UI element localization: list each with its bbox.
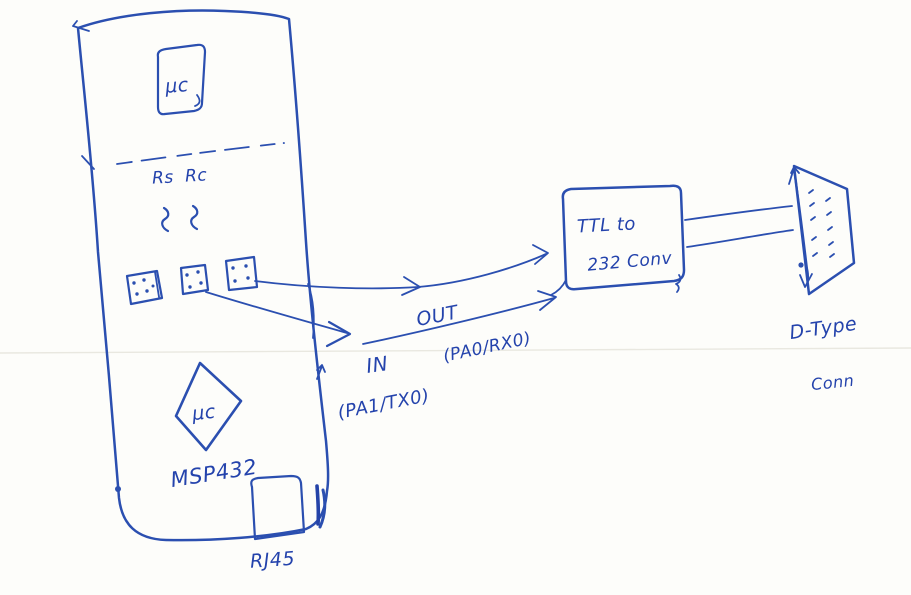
pin-dot <box>828 227 832 230</box>
chip-corner-hook <box>195 95 200 106</box>
pin-dot <box>813 253 817 256</box>
board-section-divider-dashed <box>117 143 284 164</box>
corner-ink-mark <box>320 490 325 527</box>
top-mcu-chip-label: μc <box>163 74 189 98</box>
launchpad-board: μc Rs Rc <box>73 11 328 573</box>
pad-pin-dot <box>233 279 236 282</box>
pin-dot <box>829 242 833 245</box>
box-corner-tail <box>551 280 566 295</box>
resistor-symbol-1 <box>162 208 168 231</box>
pin-dot <box>811 217 815 220</box>
corner-ink-blob <box>115 486 121 492</box>
rj45-jack <box>251 476 304 539</box>
board-name-label: MSP432 <box>169 455 259 492</box>
resistor-label-rc: Rc <box>185 165 208 186</box>
pad-pin-dot <box>152 285 155 288</box>
box-corner-squiggle <box>676 275 680 292</box>
resistor-label-rs: Rs <box>152 168 175 189</box>
pad-pin-dot <box>196 270 199 273</box>
ttl-label-line2: 232 Conv <box>587 248 674 275</box>
pin-dot <box>812 237 816 240</box>
pad-pin-dot <box>135 292 138 295</box>
header-pad-right <box>226 257 257 290</box>
pad-pin-dot <box>188 285 191 288</box>
pad-pin-dot <box>145 289 148 292</box>
dtype-pins <box>809 190 834 257</box>
in-arrowhead-icon <box>327 322 350 346</box>
header-pad-left <box>127 271 162 304</box>
dtype-label: D-Type <box>788 313 858 344</box>
pad-pin-dot <box>142 278 145 281</box>
board-edge-tick <box>82 156 94 169</box>
pin-dot <box>826 198 830 201</box>
pin-dot <box>830 254 834 257</box>
pad-pin-dot <box>246 276 249 279</box>
signal-line-in <box>206 292 347 333</box>
serial-line-lower <box>687 230 793 247</box>
arrowhead-mid-icon <box>402 277 420 295</box>
pad-outline <box>181 265 208 294</box>
hand-drawn-schematic: μc Rs Rc <box>0 0 911 595</box>
signal-arrows: OUT (PA0/RX0) IN (PA1/TX0) <box>206 245 556 424</box>
pad-outline <box>226 257 257 290</box>
pad-pin-dot <box>244 264 247 267</box>
serial-line-upper <box>685 206 792 220</box>
arrowhead-upper-end-icon <box>533 245 548 264</box>
serial-cable <box>685 206 793 247</box>
ttl-converter-box <box>563 186 684 289</box>
d-type-connector: D-Type Conn <box>788 166 858 394</box>
out-label: OUT <box>415 301 461 331</box>
edge-ink-blob <box>798 262 803 267</box>
in-pins-label: (PA1/TX0) <box>336 385 431 423</box>
out-pins-label: (PA0/RX0) <box>441 328 533 366</box>
in-label: IN <box>365 351 390 378</box>
corner-ink-mark <box>317 486 318 524</box>
rj45-label: RJ45 <box>249 548 295 573</box>
header-pad-middle <box>181 265 208 294</box>
pad-pin-dot <box>185 273 188 276</box>
pin-dot <box>827 212 831 215</box>
pad-pin-dot <box>199 281 202 284</box>
ttl-label-line1: TTL to <box>577 213 637 237</box>
conn-label: Conn <box>810 371 855 394</box>
mcu-diamond-label: μc <box>190 401 217 425</box>
pad-pin-dot <box>231 266 234 269</box>
pin-dot <box>810 203 814 206</box>
signal-line-upper <box>255 254 546 288</box>
resistor-symbol-2 <box>191 206 197 229</box>
sketch-svg: μc Rs Rc <box>0 0 911 595</box>
ttl-converter: TTL to 232 Conv <box>551 186 684 295</box>
dtype-connector-edge <box>794 169 807 269</box>
pad-pin-dot <box>132 281 135 284</box>
pin-dot <box>809 190 813 193</box>
